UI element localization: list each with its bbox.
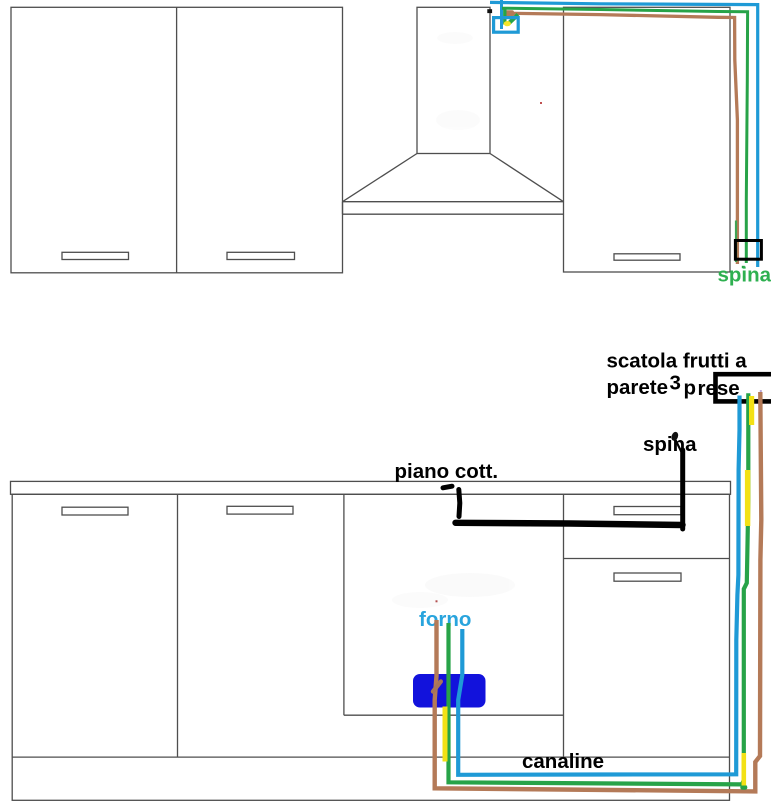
svg-text:piano cott.: piano cott. <box>395 460 499 483</box>
svg-text:spina: spina <box>643 433 697 456</box>
svg-text:parete: parete <box>607 376 669 399</box>
svg-text:rese: rese <box>698 377 740 400</box>
svg-text:forno: forno <box>419 608 471 631</box>
svg-text:3: 3 <box>670 372 681 395</box>
svg-text:scatola frutti a: scatola frutti a <box>607 350 748 373</box>
svg-text:p: p <box>684 377 697 400</box>
svg-text:canaline: canaline <box>522 750 604 773</box>
svg-text:spina: spina <box>718 264 771 287</box>
